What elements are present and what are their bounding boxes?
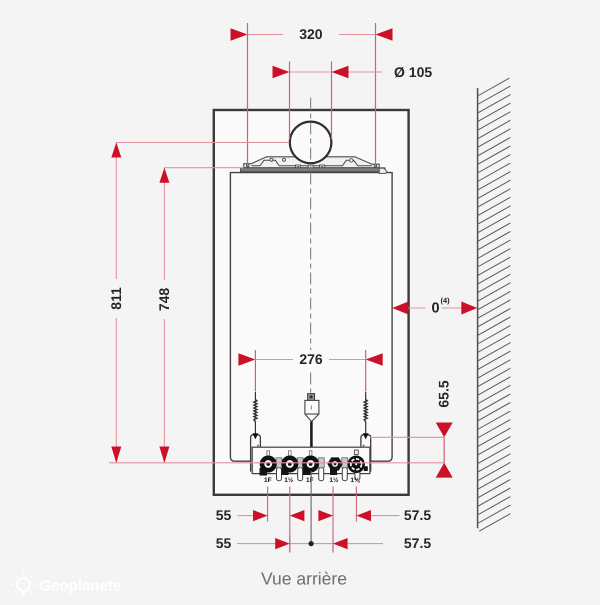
svg-text:Geoplanete: Geoplanete — [40, 578, 122, 595]
svg-text:(4): (4) — [441, 296, 451, 305]
svg-text:1½: 1½ — [284, 477, 294, 484]
svg-text:1F: 1F — [306, 477, 314, 484]
svg-text:57.5: 57.5 — [404, 507, 431, 523]
svg-text:57.5: 57.5 — [404, 535, 431, 551]
svg-text:0: 0 — [432, 301, 440, 317]
svg-text:1F: 1F — [264, 477, 272, 484]
svg-text:65.5: 65.5 — [435, 380, 451, 407]
svg-text:320: 320 — [299, 26, 323, 42]
svg-text:276: 276 — [299, 351, 323, 367]
svg-text:748: 748 — [156, 288, 172, 312]
svg-text:1½: 1½ — [329, 477, 339, 484]
svg-text:811: 811 — [108, 287, 124, 310]
svg-text:1¾: 1¾ — [350, 477, 360, 484]
svg-text:55: 55 — [216, 507, 232, 523]
svg-text:55: 55 — [216, 535, 232, 551]
svg-text:Ø 105: Ø 105 — [394, 64, 432, 80]
svg-text:Vue arrière: Vue arrière — [261, 569, 347, 589]
